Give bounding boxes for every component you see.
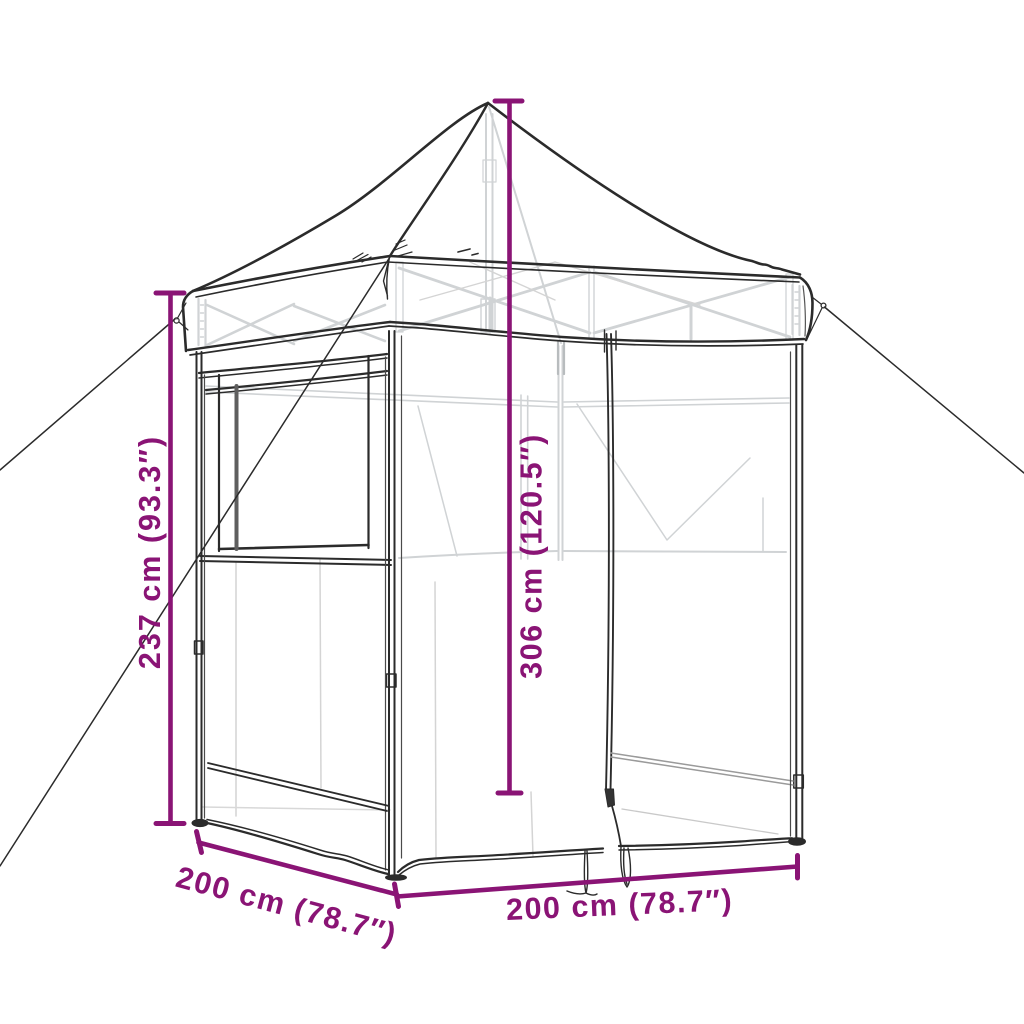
svg-text:237 cm (93.3″): 237 cm (93.3″) [133, 435, 167, 669]
svg-text:306 cm (120.5″): 306 cm (120.5″) [515, 433, 549, 679]
